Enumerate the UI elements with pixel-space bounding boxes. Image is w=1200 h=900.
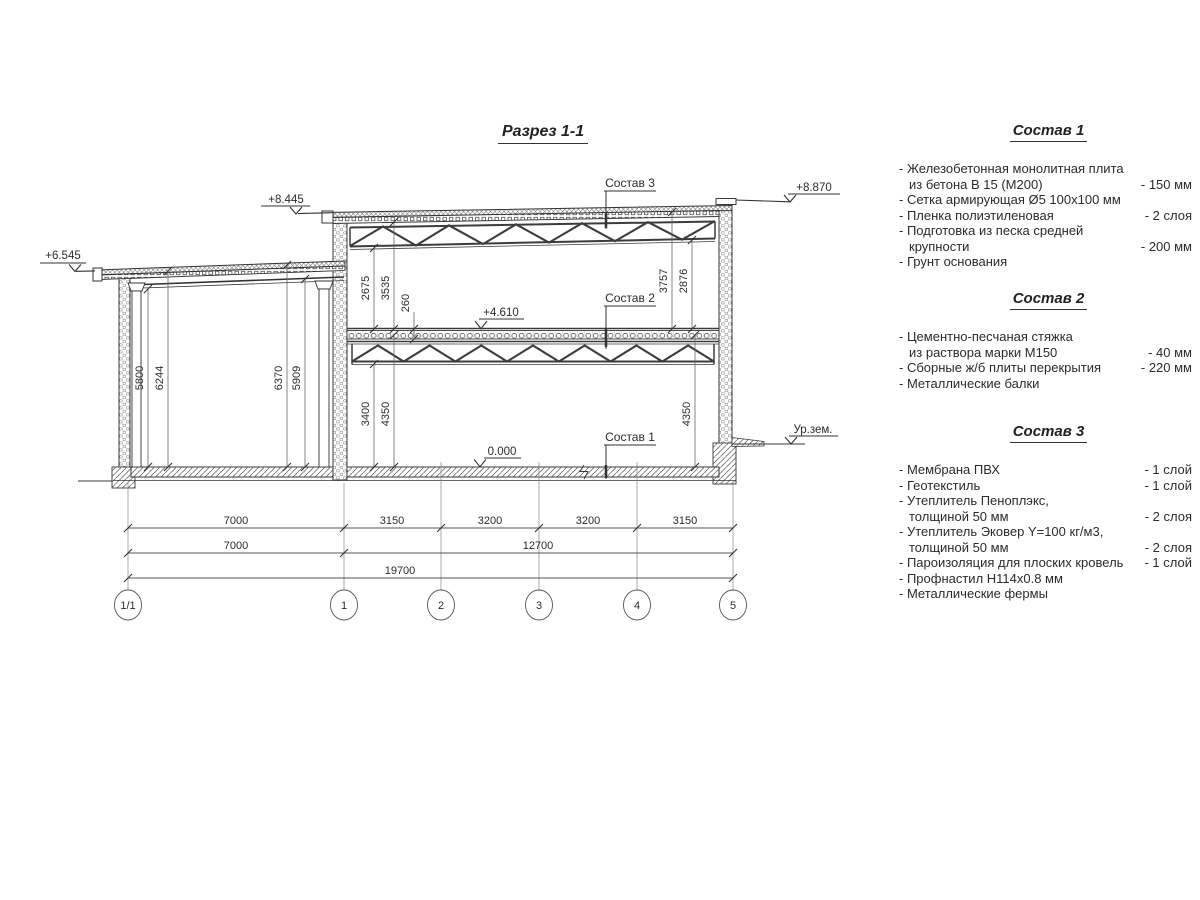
grid-bubble-3: 3 <box>536 600 542 612</box>
roof-truss <box>350 221 715 250</box>
floor-slab <box>78 438 805 482</box>
left-building <box>93 261 345 467</box>
legend-item: - Пароизоляция для плоских кровель- 1 сл… <box>897 555 1192 571</box>
legend-item: - Сетка армирующая Ø5 100х100 мм <box>897 192 1192 208</box>
grid-bubble-2: 2 <box>438 600 444 612</box>
dim-2876: 2876 <box>678 269 690 293</box>
grid-bubble-5: 5 <box>730 600 736 612</box>
legend-item: - Утеплитель Эковер Y=100 кг/м3, <box>897 524 1192 540</box>
grid-bubble-1-1: 1/1 <box>120 600 135 612</box>
floor2-truss <box>352 344 714 365</box>
legend-item: толщиной 50 мм- 2 слоя <box>897 509 1192 525</box>
grid-bubble-4: 4 <box>634 600 640 612</box>
grid-bubbles <box>115 590 747 620</box>
ground-level-label: Ур.зем. <box>793 424 832 436</box>
dim-3150-a: 3150 <box>380 515 404 527</box>
elevation-label-left-roof: +6.545 <box>45 250 81 262</box>
legend-item: из раствора марки М150- 40 мм <box>897 345 1192 361</box>
dim-260: 260 <box>400 294 412 312</box>
dim-4350-right: 4350 <box>681 402 693 426</box>
tall-building-roof <box>322 206 732 224</box>
legend-item: толщиной 50 мм- 2 слоя <box>897 540 1192 556</box>
dim-6244: 6244 <box>154 366 166 390</box>
elevation-label-upper-left: +8.445 <box>268 194 304 206</box>
legend-item: крупности- 200 мм <box>897 239 1192 255</box>
legend-item: - Металлические фермы <box>897 586 1192 602</box>
legend-item: из бетона В 15 (М200)- 150 мм <box>897 177 1192 193</box>
dim-12700: 12700 <box>523 540 554 552</box>
legend-sostav-1: Состав 1 - Железобетонная монолитная пли… <box>897 122 1200 270</box>
legend-item: - Железобетонная монолитная плита <box>897 161 1192 177</box>
legend-item: - Сборные ж/б плиты перекрытия- 220 мм <box>897 360 1192 376</box>
dim-row-lines <box>128 528 733 578</box>
elevation-label-parapet: +8.870 <box>796 182 832 194</box>
grid-bubble-1: 1 <box>341 600 347 612</box>
dim-2675: 2675 <box>360 276 372 300</box>
legend-item: - Мембрана ПВХ- 1 слой <box>897 462 1192 478</box>
dim-6370: 6370 <box>273 366 285 390</box>
legend-item: - Цементно-песчаная стяжка <box>897 329 1192 345</box>
dim-3200-a: 3200 <box>478 515 502 527</box>
grid-extension-lines <box>128 462 733 590</box>
legend-sostav-2-title: Состав 2 <box>897 290 1200 309</box>
legend-item: - Пленка полиэтиленовая- 2 слоя <box>897 208 1192 224</box>
dim-7000-a: 7000 <box>224 515 248 527</box>
dim-7000-b: 7000 <box>224 540 248 552</box>
legend-sostav-1-title: Состав 1 <box>897 122 1200 141</box>
elevation-label-floor1: 0.000 <box>488 446 517 458</box>
vertical-dim-lines <box>148 212 695 467</box>
dim-4350-left: 4350 <box>380 402 392 426</box>
legend-item: - Геотекстиль- 1 слой <box>897 478 1192 494</box>
legend-item: - Металлические балки <box>897 376 1192 392</box>
dim-5909: 5909 <box>291 366 303 390</box>
drawing-sheet: Разрез 1-1 <box>0 0 1200 900</box>
dim-3400: 3400 <box>360 402 372 426</box>
legend-sostav-3: Состав 3 - Мембрана ПВХ- 1 слой - Геотек… <box>897 423 1200 602</box>
dim-3200-b: 3200 <box>576 515 600 527</box>
leader-label-sostav1: Состав 1 <box>605 430 655 444</box>
legend-item: - Грунт основания <box>897 254 1192 270</box>
dim-3535: 3535 <box>380 276 392 300</box>
section-drawing: +6.545 +8.445 +8.870 +4.610 0.000 Ур.зем… <box>0 0 860 660</box>
leader-label-sostav2: Состав 2 <box>605 291 655 305</box>
legend-item: - Профнастил Н114х0.8 мм <box>897 571 1192 587</box>
legend-item: - Утеплитель Пеноплэкс, <box>897 493 1192 509</box>
legend-sostav-2: Состав 2 - Цементно-песчаная стяжка из р… <box>897 290 1200 391</box>
dim-5800: 5800 <box>134 366 146 390</box>
floor2-slab <box>347 329 719 345</box>
dim-3757: 3757 <box>658 269 670 293</box>
dim-3150-b: 3150 <box>673 515 697 527</box>
legend-item: - Подготовка из песка средней <box>897 223 1192 239</box>
elevation-label-floor2: +4.610 <box>483 307 519 319</box>
drawing-title: Разрез 1-1 <box>498 123 588 144</box>
legend-sostav-3-title: Состав 3 <box>897 423 1200 442</box>
leader-label-sostav3: Состав 3 <box>605 176 655 190</box>
dim-19700: 19700 <box>385 565 416 577</box>
